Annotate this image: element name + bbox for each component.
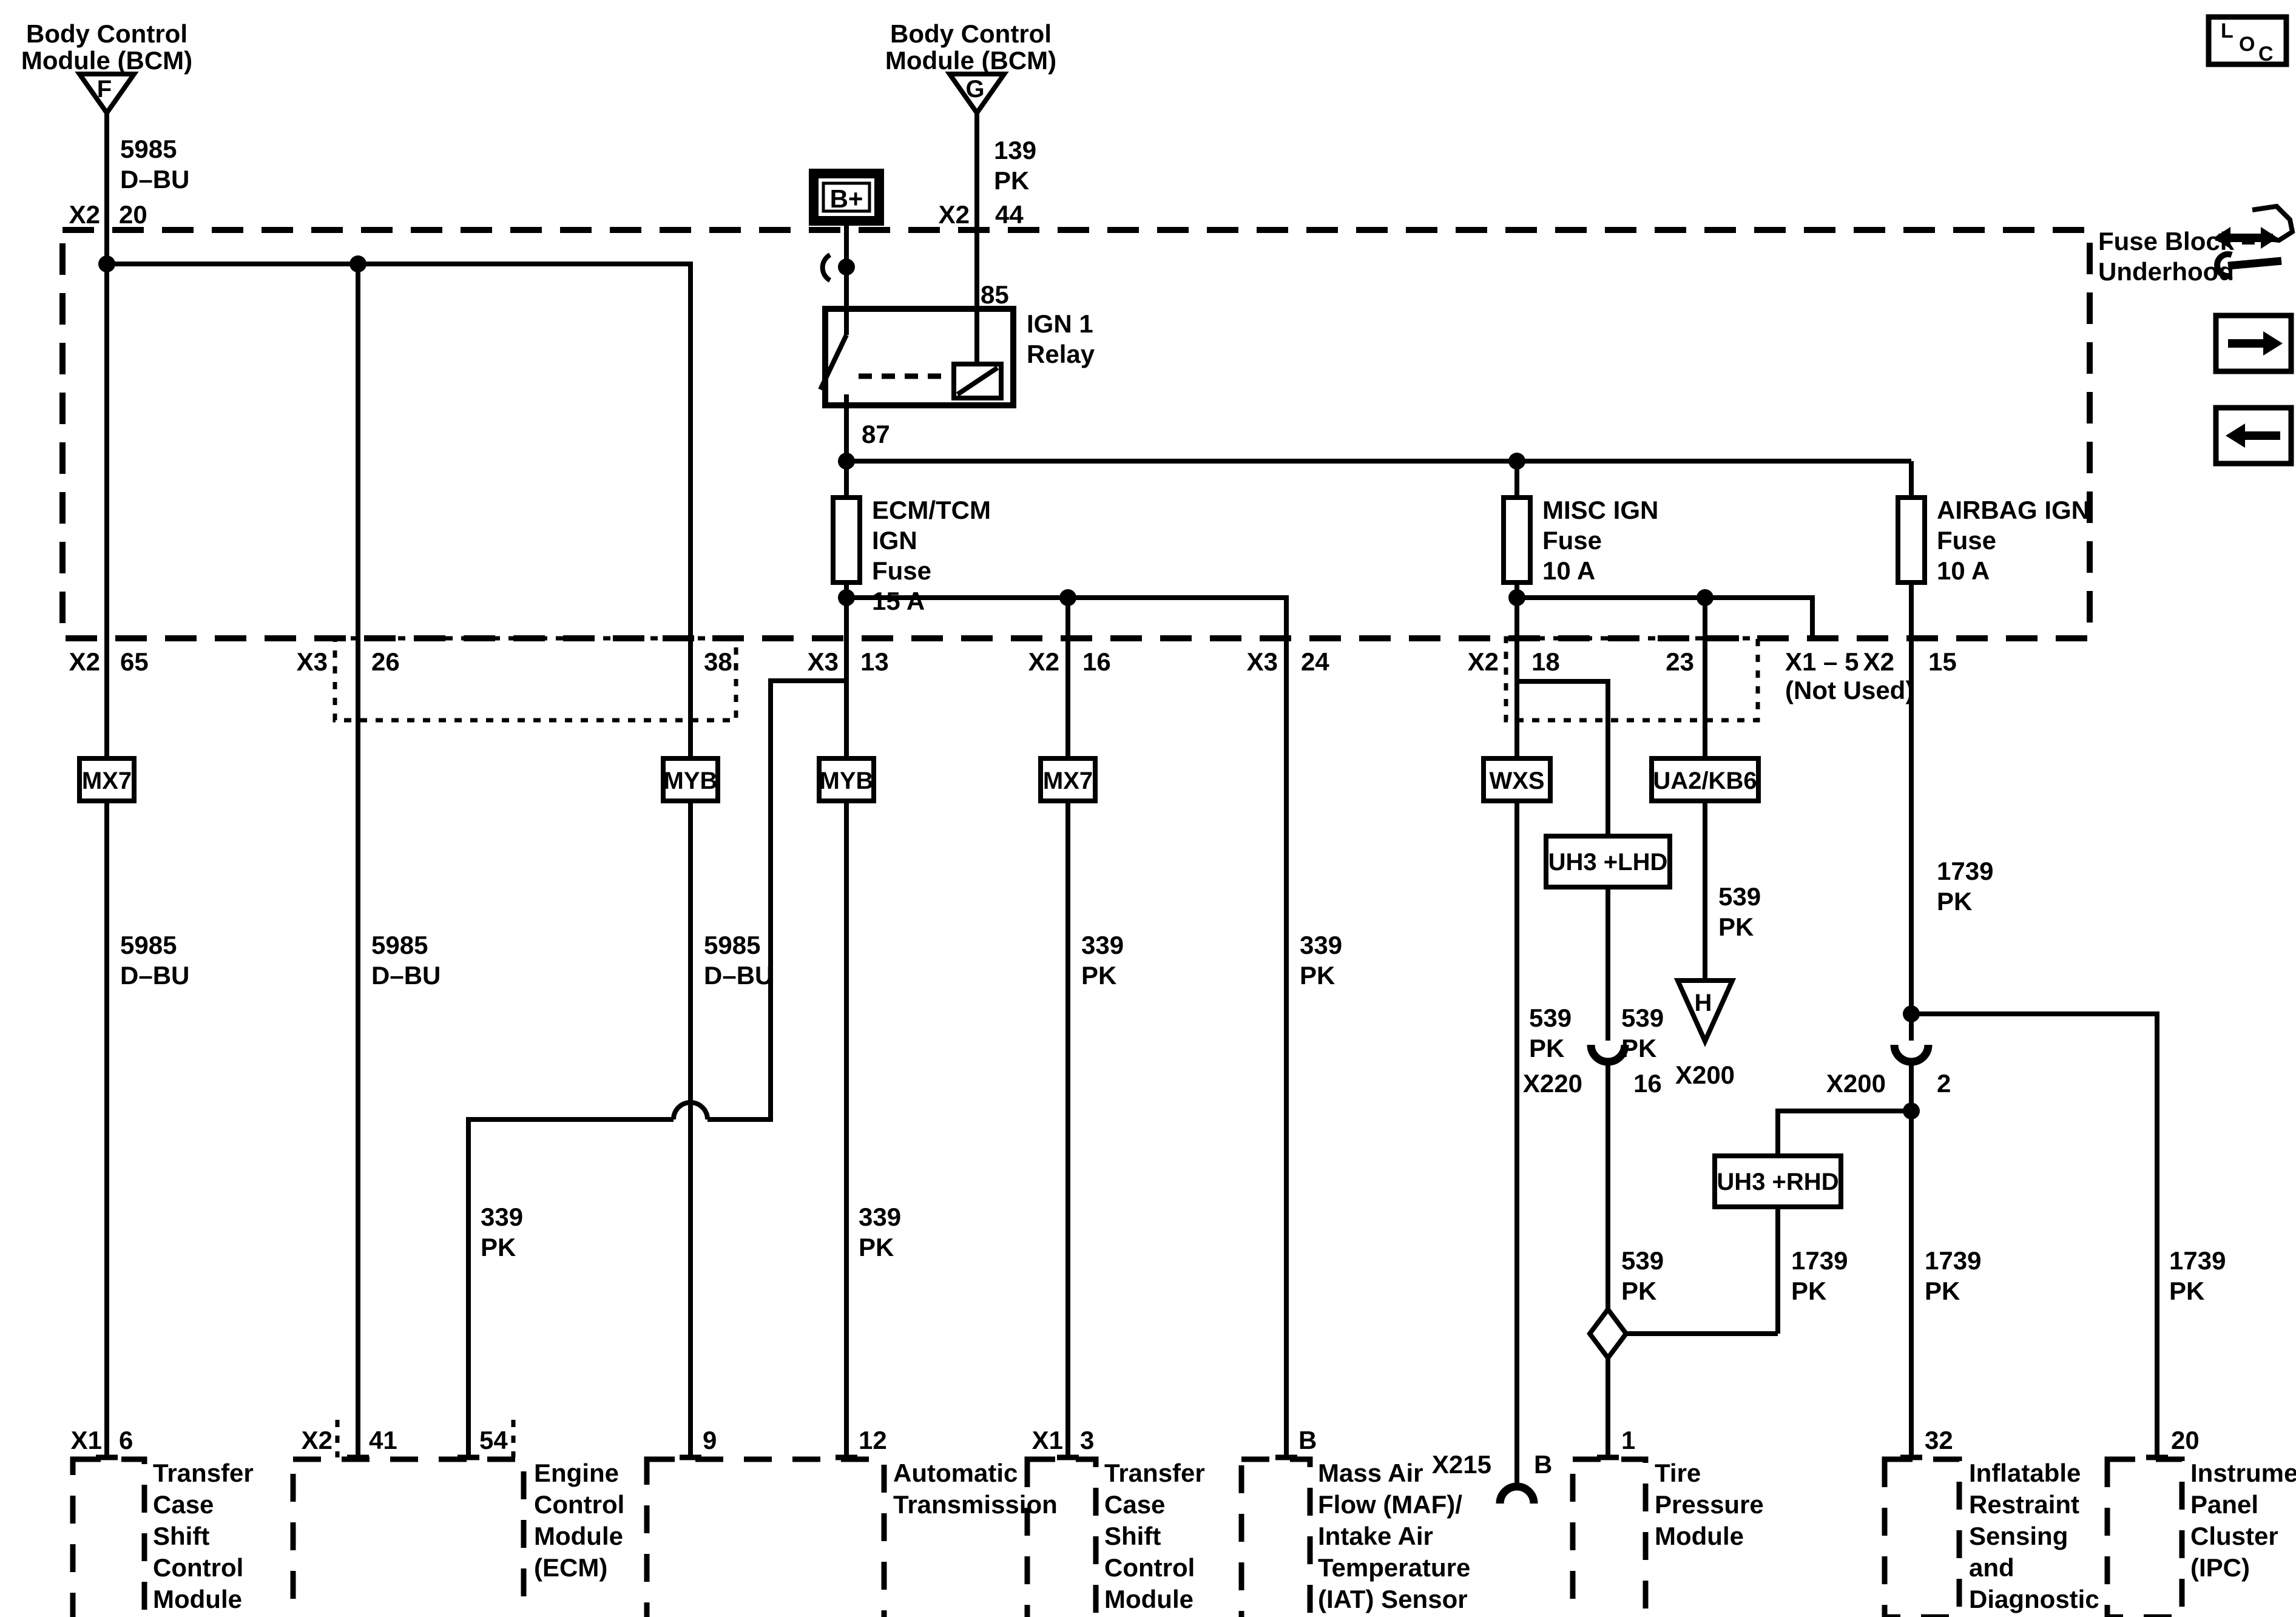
svg-text:1739: 1739 <box>2169 1246 2226 1275</box>
svg-text:Transfer: Transfer <box>1104 1459 1205 1487</box>
junction-dots <box>98 255 1920 1119</box>
svg-text:X2: X2 <box>939 200 970 229</box>
svg-text:Inflatable: Inflatable <box>1969 1459 2081 1487</box>
svg-text:MX7: MX7 <box>82 768 132 794</box>
svg-text:MYB: MYB <box>664 768 718 794</box>
module-ecm: X2 41 54 Engine Control Module (ECM) <box>293 1420 624 1617</box>
svg-text:5985: 5985 <box>704 931 760 959</box>
svg-text:PK: PK <box>1791 1277 1826 1305</box>
svg-text:Cluster: Cluster <box>2190 1522 2278 1550</box>
svg-text:H: H <box>1695 990 1712 1016</box>
svg-text:Underhood: Underhood <box>2098 257 2234 286</box>
svg-text:PK: PK <box>859 1233 894 1261</box>
svg-text:MYB: MYB <box>820 768 874 794</box>
svg-text:Module: Module <box>534 1522 623 1550</box>
svg-text:539: 539 <box>1621 1004 1664 1032</box>
svg-text:6: 6 <box>119 1426 133 1454</box>
svg-text:WXS: WXS <box>1489 768 1544 794</box>
svg-text:32: 32 <box>1925 1426 1953 1454</box>
svg-text:Tire: Tire <box>1655 1459 1701 1487</box>
svg-text:Mass Air: Mass Air <box>1318 1459 1423 1487</box>
svg-text:Automatic: Automatic <box>893 1459 1018 1487</box>
svg-text:X3: X3 <box>297 647 328 676</box>
svg-text:1: 1 <box>1621 1426 1635 1454</box>
svg-text:MX7: MX7 <box>1043 768 1093 794</box>
fuse-block-connector-row: X2 65 X3 26 38 X3 13 X2 16 X3 24 X2 18 2… <box>69 647 1957 704</box>
svg-text:16: 16 <box>1082 647 1111 676</box>
svg-text:B+: B+ <box>830 184 863 213</box>
svg-text:PK: PK <box>1925 1277 1960 1305</box>
svg-text:87: 87 <box>862 420 890 448</box>
svg-text:PK: PK <box>1621 1277 1656 1305</box>
svg-text:5985: 5985 <box>120 931 177 959</box>
svg-text:Transfer: Transfer <box>153 1459 254 1487</box>
svg-text:C: C <box>2258 42 2274 66</box>
svg-text:20: 20 <box>2171 1426 2200 1454</box>
svg-text:UH3 +LHD: UH3 +LHD <box>1548 849 1668 876</box>
svg-text:IGN: IGN <box>872 526 917 555</box>
svg-text:44: 44 <box>995 200 1024 229</box>
svg-text:1739: 1739 <box>1937 857 1993 885</box>
fuse-icon <box>833 498 860 582</box>
inline-connector-icon <box>1500 1487 1534 1504</box>
svg-text:Module: Module <box>1655 1522 1744 1550</box>
svg-text:X2: X2 <box>1028 647 1059 676</box>
option-boxes: MX7 MYB MYB MX7 WXS UA2/KB6 UH3 +LHD UH3… <box>79 758 1841 1207</box>
svg-text:Control: Control <box>534 1490 624 1519</box>
fuse-block-boundary <box>62 230 2090 638</box>
svg-text:Engine: Engine <box>534 1459 619 1487</box>
svg-text:Intake Air: Intake Air <box>1318 1522 1433 1550</box>
svg-text:41: 41 <box>369 1426 397 1454</box>
svg-text:D–BU: D–BU <box>120 961 189 990</box>
svg-text:Temperature: Temperature <box>1318 1553 1470 1582</box>
svg-text:D–BU: D–BU <box>120 165 189 194</box>
inline-connector-x200: X200 2 <box>1826 1045 1951 1098</box>
svg-text:PK: PK <box>1081 961 1116 990</box>
svg-text:539: 539 <box>1621 1246 1664 1275</box>
svg-text:X200: X200 <box>1826 1069 1886 1098</box>
svg-text:18: 18 <box>1531 647 1560 676</box>
loc-icon: L O C <box>2209 17 2286 66</box>
svg-text:Body Control: Body Control <box>26 19 187 48</box>
module-transfer-case-1: X1 6 Transfer Case Shift Control Module <box>71 1426 254 1617</box>
svg-text:Module: Module <box>1104 1585 1194 1613</box>
svg-text:15: 15 <box>1928 647 1957 676</box>
module-tire-pressure: 1 Tire Pressure Module <box>1573 1426 1764 1617</box>
svg-text:3: 3 <box>1080 1426 1094 1454</box>
svg-text:PK: PK <box>481 1233 516 1261</box>
svg-text:(Not Used): (Not Used) <box>1785 676 1914 704</box>
svg-text:Body Control: Body Control <box>890 19 1052 48</box>
svg-text:Shift: Shift <box>1104 1522 1161 1550</box>
svg-text:PK: PK <box>1300 961 1335 990</box>
svg-text:PK: PK <box>1718 913 1754 941</box>
svg-text:539: 539 <box>1529 1004 1572 1032</box>
svg-text:X1: X1 <box>1032 1426 1063 1454</box>
wires <box>107 111 2157 1485</box>
svg-text:Control: Control <box>1104 1553 1195 1582</box>
svg-text:L: L <box>2221 19 2234 42</box>
svg-text:339: 339 <box>1300 931 1342 959</box>
arrow-forward-icon <box>2216 316 2291 371</box>
off-sheet-connector-h: H X200 <box>1675 981 1735 1089</box>
module-sdm: 32 Inflatable Restraint Sensing and Diag… <box>1885 1426 2099 1617</box>
svg-text:(ECM): (ECM) <box>534 1553 607 1582</box>
svg-text:PK: PK <box>2169 1277 2204 1305</box>
svg-text:X3: X3 <box>1247 647 1278 676</box>
svg-text:Shift: Shift <box>153 1522 209 1550</box>
svg-text:B: B <box>1298 1426 1317 1454</box>
svg-text:(IPC): (IPC) <box>2190 1553 2250 1582</box>
svg-text:X2: X2 <box>1863 647 1894 676</box>
svg-text:Diagnostic: Diagnostic <box>1969 1585 2099 1613</box>
svg-text:10 A: 10 A <box>1542 556 1595 585</box>
svg-text:PK: PK <box>1529 1034 1564 1062</box>
svg-text:Relay: Relay <box>1027 340 1095 368</box>
svg-text:Panel: Panel <box>2190 1490 2258 1519</box>
svg-text:X220: X220 <box>1523 1069 1582 1098</box>
module-transfer-case-2: X1 3 Transfer Case Shift Control Module <box>1027 1426 1205 1617</box>
svg-text:Case: Case <box>153 1490 214 1519</box>
svg-text:Fuse: Fuse <box>1542 526 1602 555</box>
svg-text:Sensing: Sensing <box>1969 1522 2068 1550</box>
svg-text:10 A: 10 A <box>1937 556 1990 585</box>
svg-text:9: 9 <box>703 1426 717 1454</box>
svg-text:339: 339 <box>859 1203 901 1231</box>
svg-text:IGN 1: IGN 1 <box>1027 309 1093 338</box>
svg-text:AIRBAG IGN: AIRBAG IGN <box>1937 496 2090 524</box>
svg-text:339: 339 <box>1081 931 1124 959</box>
svg-text:Restraint: Restraint <box>1969 1490 2079 1519</box>
svg-text:24: 24 <box>1301 647 1329 676</box>
svg-text:Module: Module <box>153 1585 242 1613</box>
inline-connector-icon <box>1894 1045 1928 1062</box>
svg-text:Module (BCM): Module (BCM) <box>885 46 1056 75</box>
svg-text:20: 20 <box>119 200 147 229</box>
svg-text:Control: Control <box>153 1553 243 1582</box>
ign1-relay: 85 IGN 1 Relay 87 <box>825 280 1095 448</box>
svg-text:X2: X2 <box>69 200 100 229</box>
svg-text:X1: X1 <box>71 1426 102 1454</box>
svg-text:139: 139 <box>994 136 1036 164</box>
svg-text:B: B <box>1534 1450 1552 1479</box>
svg-text:54: 54 <box>479 1426 508 1454</box>
svg-text:85: 85 <box>981 280 1009 309</box>
svg-text:D–BU: D–BU <box>704 961 773 990</box>
svg-text:1739: 1739 <box>1791 1246 1848 1275</box>
wiring-diagram-page: Body Control Module (BCM) F 5985 D–BU X2… <box>0 0 2296 1617</box>
inline-connector-icon <box>1591 1045 1625 1062</box>
svg-text:1739: 1739 <box>1925 1246 1981 1275</box>
svg-text:O: O <box>2239 33 2255 56</box>
module-ipc: 20 Instrument Panel Cluster (IPC) <box>2107 1426 2296 1617</box>
svg-text:Fuse: Fuse <box>872 556 931 585</box>
svg-text:38: 38 <box>704 647 732 676</box>
svg-text:(IAT) Sensor: (IAT) Sensor <box>1318 1585 1468 1613</box>
svg-text:PK: PK <box>1937 887 1972 916</box>
svg-text:Fuse: Fuse <box>1937 526 1996 555</box>
svg-text:65: 65 <box>120 647 149 676</box>
bcm-connector-g: Body Control Module (BCM) G 139 PK X2 44 <box>885 19 1056 229</box>
svg-text:5985: 5985 <box>120 135 177 163</box>
svg-text:12: 12 <box>859 1426 887 1454</box>
svg-text:MISC IGN: MISC IGN <box>1542 496 1658 524</box>
svg-text:UH3 +RHD: UH3 +RHD <box>1717 1169 1838 1195</box>
svg-text:F: F <box>97 76 112 103</box>
splice-diamond-icon <box>1590 1309 1626 1358</box>
fuse-misc-ign: MISC IGN Fuse 10 A <box>1504 496 1658 585</box>
svg-text:5985: 5985 <box>371 931 428 959</box>
svg-text:2: 2 <box>1937 1069 1951 1098</box>
svg-text:Transmission: Transmission <box>893 1490 1058 1519</box>
svg-text:Flow (MAF)/: Flow (MAF)/ <box>1318 1490 1462 1519</box>
svg-text:539: 539 <box>1718 882 1761 911</box>
fuse-airbag-ign: AIRBAG IGN Fuse 10 A <box>1898 496 2090 585</box>
svg-text:23: 23 <box>1666 647 1694 676</box>
b-plus-terminal-hook-icon <box>823 255 830 280</box>
module-automatic-transmission: 9 12 Automatic Transmission <box>647 1426 1058 1617</box>
svg-text:PK: PK <box>994 166 1029 195</box>
svg-text:Pressure: Pressure <box>1655 1490 1764 1519</box>
svg-text:X2: X2 <box>1468 647 1499 676</box>
wiring-diagram: Body Control Module (BCM) F 5985 D–BU X2… <box>0 0 2296 1617</box>
svg-text:X200: X200 <box>1675 1061 1735 1089</box>
fuse-icon <box>1898 498 1925 582</box>
svg-text:16: 16 <box>1633 1069 1662 1098</box>
svg-text:Case: Case <box>1104 1490 1165 1519</box>
svg-text:X2: X2 <box>69 647 100 676</box>
svg-text:X215: X215 <box>1432 1450 1491 1479</box>
svg-text:X1 – 5: X1 – 5 <box>1785 647 1859 676</box>
svg-text:15 A: 15 A <box>872 587 925 615</box>
svg-text:D–BU: D–BU <box>371 961 441 990</box>
svg-text:and: and <box>1969 1553 2014 1582</box>
svg-text:Module (BCM): Module (BCM) <box>21 46 192 75</box>
svg-text:UA2/KB6: UA2/KB6 <box>1653 768 1757 794</box>
fuse-icon <box>1504 498 1530 582</box>
svg-text:339: 339 <box>481 1203 523 1231</box>
arrow-back-icon <box>2216 408 2291 464</box>
svg-text:ECM/TCM: ECM/TCM <box>872 496 991 524</box>
svg-text:13: 13 <box>860 647 889 676</box>
svg-text:Instrument: Instrument <box>2190 1459 2296 1487</box>
svg-text:G: G <box>965 76 984 103</box>
svg-text:X2: X2 <box>302 1426 333 1454</box>
svg-text:26: 26 <box>371 647 400 676</box>
svg-text:X3: X3 <box>808 647 839 676</box>
